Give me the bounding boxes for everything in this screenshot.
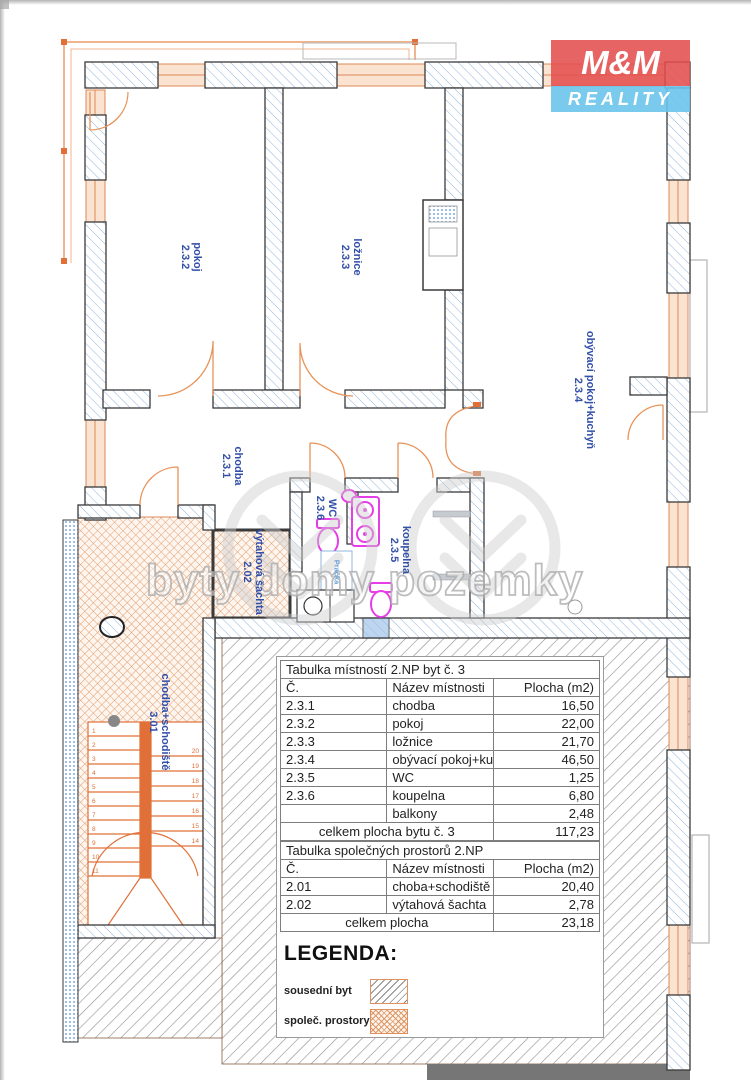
stair-tread-number: 2 <box>92 742 96 749</box>
table-row: 2.02 výtahová šachta 2,78 <box>281 896 600 914</box>
stair-tread-number: 18 <box>192 778 200 785</box>
legend-swatch-diagonal <box>370 979 408 1004</box>
stair-tread-number: 11 <box>92 868 99 875</box>
stair-start-dot <box>108 715 120 727</box>
cell-room: ložnice <box>387 733 493 751</box>
room-label-chodba: chodba 2.3.1 <box>220 446 244 485</box>
stair-tread-number: 7 <box>92 812 96 819</box>
stair-tread-number: 6 <box>92 798 96 805</box>
header-cell: Název místnosti <box>387 860 493 878</box>
legend: LEGENDA: sousední byt společ. prostory <box>280 942 600 1036</box>
cell-number: 2.3.3 <box>281 733 387 751</box>
room-number: 2.3.4 <box>572 331 584 449</box>
stair-tread-number: 1 <box>92 728 96 735</box>
table-header-row: Č. Název místnosti Plocha (m2) <box>281 860 600 878</box>
room-label-obyvaci-pokoj: obývací pokoj+kuchyň 2.3.4 <box>572 331 596 449</box>
round-column <box>100 617 124 637</box>
header-cell: Č. <box>281 679 387 697</box>
table-row: 2.3.6 koupelna 6,80 <box>281 787 600 805</box>
stair-tread-number: 3 <box>92 756 96 763</box>
legend-item-sousedni-byt: sousední byt <box>284 976 600 1006</box>
stair-tread-number: 16 <box>192 808 200 815</box>
table-row: balkony 2,48 <box>281 805 600 823</box>
room-tables-panel: Tabulka místností 2.NP byt č. 3 Č. Název… <box>276 656 604 1038</box>
cell-area: 2,48 <box>493 805 599 823</box>
room-label-chodba-schodiste: chodba+schodiště 3.01 <box>147 674 171 771</box>
cell-room: pokoj <box>387 715 493 733</box>
legend-swatch-cross <box>370 1009 408 1034</box>
cell-number: 2.3.5 <box>281 769 387 787</box>
appliance-label-pracka: Pračka <box>333 560 342 585</box>
cell-number: 2.3.6 <box>281 787 387 805</box>
legend-title: LEGENDA: <box>284 942 600 966</box>
scan-edge-top <box>0 0 751 5</box>
stair-tread-number: 5 <box>92 784 96 791</box>
table-total-row: celkem plocha 23,18 <box>281 914 600 932</box>
legend-item-spolec-prostory: společ. prostory <box>284 1006 600 1036</box>
header-cell: Plocha (m2) <box>493 860 599 878</box>
stair-tread-number: 8 <box>92 826 96 833</box>
cell-number: 2.3.1 <box>281 697 387 715</box>
total-label: celkem plocha bytu č. 3 <box>281 823 494 841</box>
table-row: 2.01 choba+schodiště 20,40 <box>281 878 600 896</box>
stair-tread-number: 9 <box>92 840 96 847</box>
room-number: 2.3.5 <box>388 526 400 574</box>
room-label-loznice: ložnice 2.3.3 <box>339 238 363 275</box>
stair-tread-number: 4 <box>92 770 96 777</box>
room-name: pokoj <box>191 242 203 271</box>
mm-reality-logo: M&M REALITY <box>551 40 690 112</box>
logo-mm-text: M&M <box>551 40 690 86</box>
total-value: 117,23 <box>493 823 599 841</box>
table-title: Tabulka místností 2.NP byt č. 3 <box>281 661 600 679</box>
total-label: celkem plocha <box>281 914 494 932</box>
stair-tread-number: 19 <box>192 763 200 770</box>
room-number: 2.02 <box>241 529 253 615</box>
legend-label: sousední byt <box>284 985 370 997</box>
cell-room: obývací pokoj+kuchyň <box>387 751 493 769</box>
scanned-floor-plan-page: 1234567891011 20191817161514 <box>0 0 751 1080</box>
room-number: 2.3.6 <box>314 496 326 520</box>
header-cell: Název místnosti <box>387 679 493 697</box>
cell-room: koupelna <box>387 787 493 805</box>
cell-area: 20,40 <box>493 878 599 896</box>
cell-number: 2.3.4 <box>281 751 387 769</box>
cell-room: choba+schodiště <box>387 878 493 896</box>
room-label-vytahova-sachta: výtahová šachta 2.02 <box>241 529 265 615</box>
stair-tread-number: 20 <box>192 748 200 755</box>
cell-room: balkony <box>387 805 493 823</box>
cell-room: výtahová šachta <box>387 896 493 914</box>
scan-edge-left <box>0 0 5 1080</box>
room-name: ložnice <box>351 238 363 275</box>
cell-area: 21,70 <box>493 733 599 751</box>
table-row: 2.3.2 pokoj 22,00 <box>281 715 600 733</box>
stair-tread-number: 14 <box>192 838 200 845</box>
logo-reality-text: REALITY <box>551 86 690 112</box>
stair-tread-number: 15 <box>192 823 200 830</box>
table-row: 2.3.4 obývací pokoj+kuchyň 46,50 <box>281 751 600 769</box>
stair-tread-number: 17 <box>192 793 200 800</box>
cell-area: 6,80 <box>493 787 599 805</box>
cell-room: WC <box>387 769 493 787</box>
total-value: 23,18 <box>493 914 599 932</box>
room-label-pokoj: pokoj 2.3.2 <box>179 242 203 271</box>
room-name: obývací pokoj+kuchyň <box>584 331 596 449</box>
table-total-row: celkem plocha bytu č. 3 117,23 <box>281 823 600 841</box>
room-label-wc: WC 2.3.6 <box>314 496 338 520</box>
table-row: 2.3.3 ložnice 21,70 <box>281 733 600 751</box>
table-row: 2.3.1 chodba 16,50 <box>281 697 600 715</box>
room-label-koupelna: koupelna 2.3.5 <box>388 526 412 574</box>
stair-tread-number: 10 <box>92 854 100 861</box>
cell-number: 2.02 <box>281 896 387 914</box>
room-name: WC <box>326 496 338 520</box>
cell-number: 2.3.2 <box>281 715 387 733</box>
room-name: chodba+schodiště <box>159 674 171 771</box>
legend-label: společ. prostory <box>284 1015 370 1027</box>
room-name: výtahová šachta <box>253 529 265 615</box>
header-cell: Plocha (m2) <box>493 679 599 697</box>
table-header-row: Č. Název místnosti Plocha (m2) <box>281 679 600 697</box>
cell-area: 22,00 <box>493 715 599 733</box>
cell-room: chodba <box>387 697 493 715</box>
room-number: 2.3.2 <box>179 242 191 271</box>
cell-number <box>281 805 387 823</box>
table-title: Tabulka společných prostorů 2.NP <box>281 842 600 860</box>
cell-area: 2,78 <box>493 896 599 914</box>
table-row: 2.3.5 WC 1,25 <box>281 769 600 787</box>
header-cell: Č. <box>281 860 387 878</box>
common-areas-table: Tabulka společných prostorů 2.NP Č. Náze… <box>280 841 600 932</box>
scan-edge-corner <box>0 0 9 9</box>
room-number: 3.01 <box>147 674 159 771</box>
cell-area: 16,50 <box>493 697 599 715</box>
room-name: koupelna <box>400 526 412 574</box>
staircase: 1234567891011 20191817161514 <box>88 715 203 933</box>
room-name: chodba <box>232 446 244 485</box>
cell-area: 46,50 <box>493 751 599 769</box>
rooms-table-flat-3: Tabulka místností 2.NP byt č. 3 Č. Název… <box>280 660 600 841</box>
cell-number: 2.01 <box>281 878 387 896</box>
cell-area: 1,25 <box>493 769 599 787</box>
room-number: 2.3.1 <box>220 446 232 485</box>
room-number: 2.3.3 <box>339 238 351 275</box>
